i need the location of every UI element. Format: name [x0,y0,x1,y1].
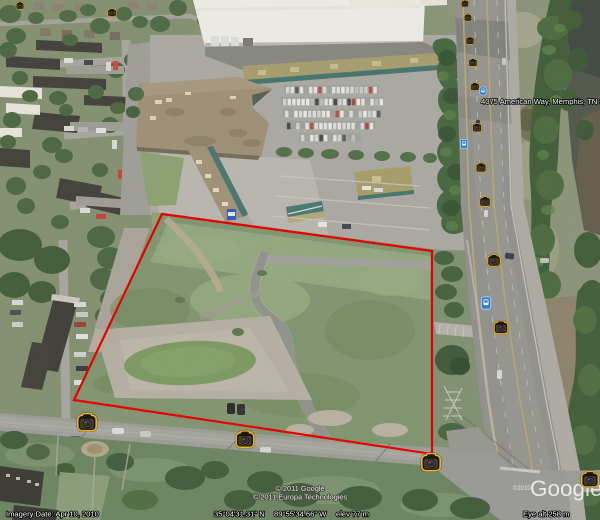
svg-text:Imagery Date: Apr 10, 2010: Imagery Date: Apr 10, 2010 [6,510,99,519]
svg-text:35°04'31.31" N: 35°04'31.31" N [214,510,265,519]
svg-text:89°55'34.66" W: 89°55'34.66" W [274,510,327,519]
svg-text:Eye alt 258 m: Eye alt 258 m [523,510,569,519]
svg-text:© 2011 Europa Technologies: © 2011 Europa Technologies [253,493,348,502]
svg-text:4075 American Way, Memphis, TN: 4075 American Way, Memphis, TN 3 [481,97,600,106]
svg-text:elev 77 m: elev 77 m [336,510,369,519]
svg-text:©2010: ©2010 [513,485,531,492]
